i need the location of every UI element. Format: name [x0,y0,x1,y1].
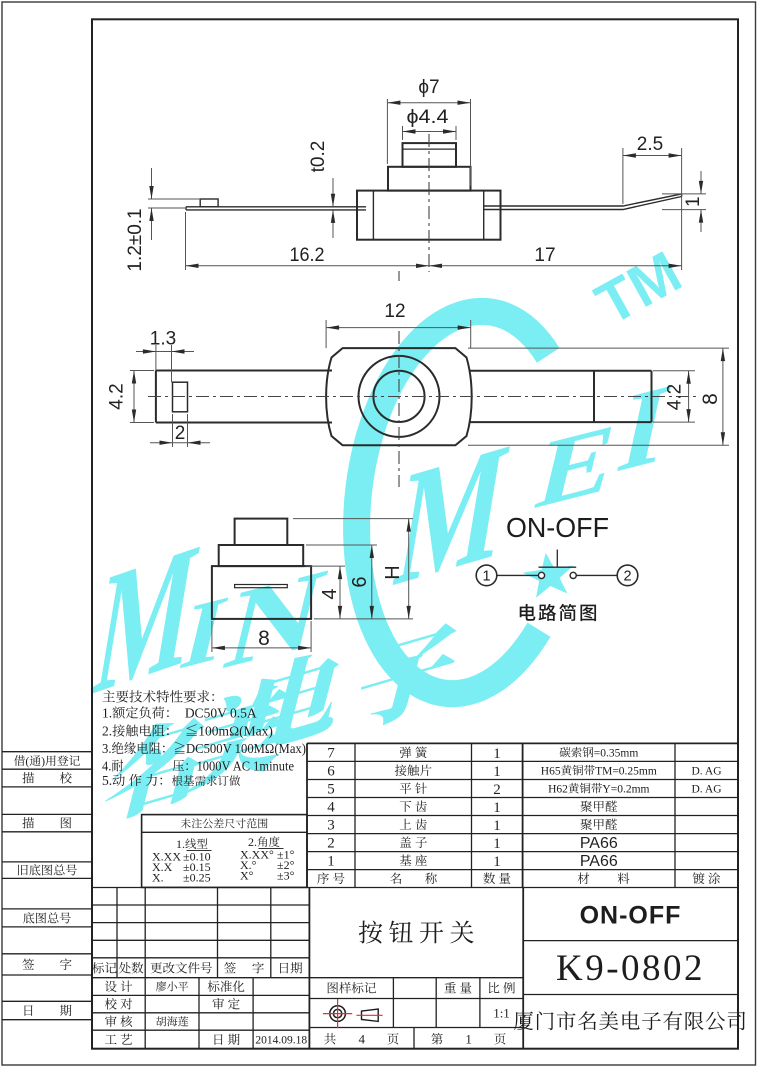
svg-text:PA66: PA66 [580,835,618,852]
svg-text:签 字: 签 字 [22,955,72,973]
svg-text:1.额定负荷： DC50V 0.5A: 1.额定负荷： DC50V 0.5A [102,703,257,722]
svg-text:8: 8 [699,393,722,405]
svg-text:D. AG: D. AG [691,784,721,796]
svg-text:2: 2 [327,836,335,852]
svg-text:日期: 日期 [278,958,304,976]
svg-text:4: 4 [358,1031,365,1046]
svg-text:6: 6 [327,764,335,780]
svg-text:16.2: 16.2 [290,245,325,266]
svg-text:日 期: 日 期 [22,1001,73,1019]
svg-text:4.2: 4.2 [107,383,128,409]
svg-text:M: M [385,407,520,622]
svg-text:2: 2 [175,423,186,444]
svg-text:未注公差尺寸范围: 未注公差尺寸范围 [180,816,268,832]
svg-text:3: 3 [327,818,335,834]
svg-text:4.2: 4.2 [665,384,686,410]
svg-text:按钮开关: 按钮开关 [358,914,480,950]
svg-text:ϕ7: ϕ7 [418,77,439,98]
svg-text:1: 1 [683,196,704,207]
svg-text:2: 2 [493,782,501,798]
svg-text:7: 7 [327,746,335,762]
svg-text:日 期: 日 期 [212,1030,241,1048]
svg-text:6: 6 [349,576,371,587]
svg-text:盖 子: 盖 子 [399,833,427,851]
svg-text:3.绝缘电阻：≧DC500V 100MΩ(Max): 3.绝缘电阻：≧DC500V 100MΩ(Max) [102,738,306,757]
svg-text:图样标记: 图样标记 [326,979,377,997]
svg-text:校 对: 校 对 [105,995,133,1013]
svg-text:签 字: 签 字 [224,958,265,976]
svg-text:1: 1 [327,854,335,870]
svg-text:借(通)用登记: 借(通)用登记 [14,752,81,769]
svg-text:旧底图总号: 旧底图总号 [17,862,78,879]
svg-text:±0.25: ±0.25 [183,871,211,885]
svg-text:比 例: 比 例 [487,979,515,997]
svg-text:平 针: 平 针 [399,779,428,797]
svg-text:1: 1 [493,764,501,780]
svg-text:镀 涂: 镀 涂 [692,869,721,887]
svg-text:5.动 作 力：根基需求订做: 5.动 作 力：根基需求订做 [102,770,241,789]
svg-text:1.3: 1.3 [150,329,176,350]
svg-text:碳索钢=0.35mm: 碳索钢=0.35mm [559,747,638,760]
svg-text:1: 1 [493,800,501,816]
svg-text:底图总号: 底图总号 [23,910,72,927]
svg-text:1: 1 [493,746,501,762]
svg-text:描 校: 描 校 [22,769,73,787]
svg-text:ON-OFF: ON-OFF [580,902,682,930]
svg-text:页: 页 [494,1029,507,1047]
svg-text:12: 12 [384,301,405,322]
svg-text:料: 料 [617,869,630,887]
svg-text:2014.09.18: 2014.09.18 [255,1035,307,1047]
svg-text:17: 17 [534,245,555,266]
svg-text:数 量: 数 量 [483,869,511,887]
svg-text:1: 1 [482,569,490,585]
svg-text:上 齿: 上 齿 [399,815,428,833]
svg-text:4: 4 [319,588,341,599]
svg-text:标记: 标记 [92,958,118,976]
svg-text:页: 页 [387,1029,400,1047]
svg-text:t0.2: t0.2 [308,141,329,173]
svg-text:下 齿: 下 齿 [399,797,428,815]
svg-text:5: 5 [327,782,335,798]
svg-text:聚甲醛: 聚甲醛 [580,815,618,833]
svg-text:PA66: PA66 [580,853,618,870]
svg-text:重 量: 重 量 [444,979,472,997]
svg-text:设 计: 设 计 [105,977,134,995]
svg-text:第: 第 [431,1029,444,1047]
svg-text:胡海莲: 胡海莲 [156,1014,189,1030]
svg-text:基 座: 基 座 [399,851,428,869]
svg-text:X°: X° [240,869,254,883]
svg-text:处数: 处数 [119,958,145,976]
svg-text:H62黄铜带Y=0.2mm: H62黄铜带Y=0.2mm [548,783,649,796]
svg-text:名: 名 [390,869,403,887]
svg-text:4: 4 [327,800,335,816]
svg-text:共: 共 [324,1029,337,1047]
svg-text:材: 材 [577,869,590,887]
svg-text:K9-0802: K9-0802 [556,948,705,989]
svg-text:更改文件号: 更改文件号 [150,958,213,976]
svg-text:TM: TM [585,239,692,338]
svg-text:ϕ4.4: ϕ4.4 [407,107,449,128]
svg-text:厦门市名美电子有限公司: 厦门市名美电子有限公司 [513,1005,747,1035]
svg-text:2.接触电阻： ≦100mΩ(Max): 2.接触电阻： ≦100mΩ(Max) [102,720,273,739]
svg-text:H: H [382,565,404,579]
svg-text:审 定: 审 定 [212,995,241,1013]
svg-text:1: 1 [493,818,501,834]
svg-text:±3°: ±3° [277,869,295,883]
svg-text:2: 2 [623,569,631,585]
svg-text:8: 8 [258,627,270,650]
svg-text:接触片: 接触片 [395,761,433,779]
svg-text:工 艺: 工 艺 [105,1030,133,1048]
svg-text:描 图: 描 图 [22,814,72,832]
svg-text:廖小平: 廖小平 [156,979,189,995]
svg-text:1: 1 [493,854,501,870]
svg-text:电路简图: 电路简图 [517,600,599,626]
svg-text:ON-OFF: ON-OFF [506,512,609,543]
svg-text:称: 称 [425,869,438,887]
svg-text:D. AG: D. AG [691,766,721,778]
svg-text:2.5: 2.5 [637,134,663,155]
svg-text:弹 簧: 弹 簧 [399,743,427,761]
svg-text:1:1: 1:1 [493,1006,510,1021]
svg-text:序 号: 序 号 [317,869,345,887]
svg-text:1: 1 [493,836,501,852]
svg-text:审 核: 审 核 [105,1012,134,1030]
svg-text:X.: X. [152,871,164,885]
svg-text:1: 1 [465,1031,472,1046]
svg-text:聚甲醛: 聚甲醛 [580,797,618,815]
svg-text:标准化: 标准化 [207,977,245,995]
svg-text:H65黄铜带TM=0.25mm: H65黄铜带TM=0.25mm [541,765,657,778]
svg-text:1.2±0.1: 1.2±0.1 [125,208,146,271]
